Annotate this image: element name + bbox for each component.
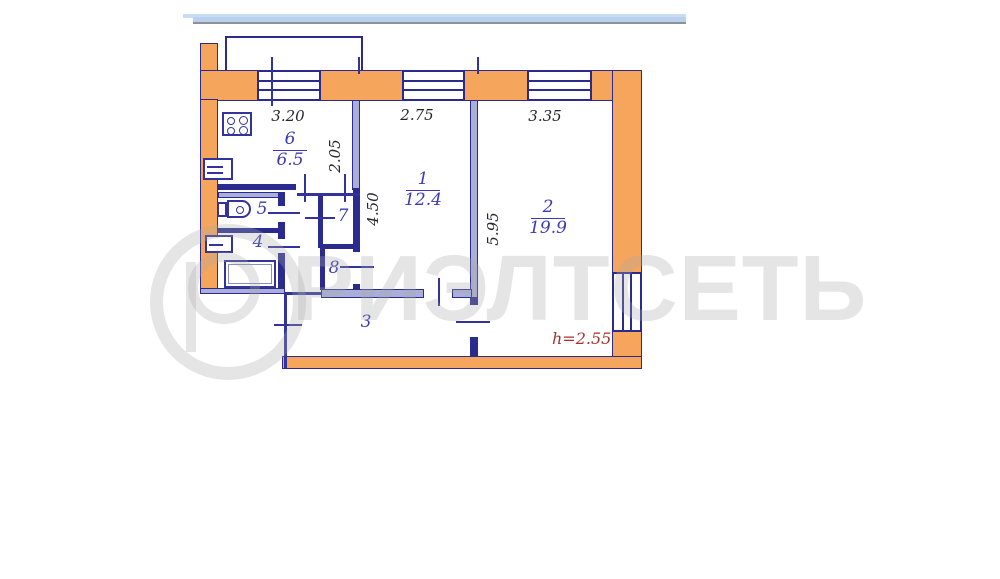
room-label-2: 2 19.9 xyxy=(518,199,578,238)
room-number: 8 xyxy=(322,260,346,278)
room-label-5: 5 xyxy=(250,201,274,219)
kitchen-sink-icon xyxy=(203,158,233,180)
room-label-kitchen: 6 6.5 xyxy=(260,131,320,170)
room2-door-tick xyxy=(456,321,490,323)
outer-wall-bottom-left-thin xyxy=(284,292,287,368)
closet8-top-wall xyxy=(320,244,360,249)
corridor7-left-wall xyxy=(318,196,323,248)
toilet-icon xyxy=(217,202,227,217)
dim-tick-kitchen-room1 xyxy=(358,57,360,74)
dim-room2-width: 3.35 xyxy=(515,107,575,125)
dim-tick-room1-room2 xyxy=(477,57,479,74)
toilet-bowl-icon xyxy=(227,200,251,218)
kitchen-bottom-wall xyxy=(218,184,296,190)
room2-window xyxy=(527,70,592,101)
kitchen-right-wall xyxy=(352,100,360,190)
room1-hall-door-tick xyxy=(438,278,440,306)
room-label-1: 1 12.4 xyxy=(393,171,453,210)
dim-room1-width: 2.75 xyxy=(387,106,447,124)
room3-top-wall-left xyxy=(321,289,424,298)
room1-window xyxy=(402,70,465,101)
room2-door-jamb-bottom xyxy=(470,337,478,356)
room-number: 3 xyxy=(354,314,378,332)
balcony-outline xyxy=(225,36,363,72)
room3-top-wall-right xyxy=(452,289,472,298)
room-area: 6.5 xyxy=(260,152,320,170)
room2-door-jamb-top xyxy=(470,297,478,305)
dim-room1-depth: 4.50 xyxy=(364,182,382,236)
wetcore-right-wall-b xyxy=(278,222,285,239)
floor-plan-page: 6 6.5 1 12.4 2 19.9 5 4 7 8 3 3.20 2.75 … xyxy=(0,0,1000,579)
toilet-bath-divider xyxy=(218,228,280,233)
dim-kitchen-width: 3.20 xyxy=(258,107,318,125)
room2-side-window xyxy=(612,272,642,332)
header-bar-bottom xyxy=(193,17,686,24)
toilet-top-wall xyxy=(218,192,280,198)
room-number: 7 xyxy=(331,208,355,226)
balcony-door-tick xyxy=(271,57,273,106)
corridor7-top-wall xyxy=(297,193,360,196)
watermark-logo-stem xyxy=(186,262,196,352)
dim-room2-depth: 5.95 xyxy=(484,202,502,256)
room-number: 5 xyxy=(250,201,274,219)
kitchen-door-tick-right xyxy=(344,174,346,202)
room-number: 2 xyxy=(518,199,578,217)
dim-kitchen-depth: 2.05 xyxy=(326,129,344,183)
room-label-7: 7 xyxy=(331,208,355,226)
washbasin-icon xyxy=(205,235,233,253)
ceiling-height-label: h=2.55 xyxy=(552,329,611,348)
stove-icon xyxy=(222,112,252,136)
bath-bottom-wall xyxy=(200,288,285,294)
room1-room2-divider xyxy=(470,100,478,303)
room-number: 4 xyxy=(246,234,270,252)
room3-left-tick xyxy=(274,324,302,326)
room-number: 6 xyxy=(260,131,320,149)
bath-door-tick xyxy=(268,246,300,248)
room-label-4: 4 xyxy=(246,234,270,252)
room-number: 1 xyxy=(393,171,453,189)
wetcore-right-wall-c xyxy=(278,253,285,288)
hall-wall-thin xyxy=(285,292,323,295)
bathtub-icon xyxy=(224,260,276,288)
room-area: 12.4 xyxy=(393,192,453,210)
outer-wall-left xyxy=(200,99,218,292)
room-label-8: 8 xyxy=(322,260,346,278)
kitchen-door-tick-left xyxy=(304,174,306,202)
wetcore-right-wall-a xyxy=(278,192,285,206)
kitchen-window xyxy=(257,70,321,101)
outer-wall-bottom xyxy=(282,356,642,369)
room-area: 19.9 xyxy=(518,220,578,238)
room-label-3: 3 xyxy=(354,314,378,332)
